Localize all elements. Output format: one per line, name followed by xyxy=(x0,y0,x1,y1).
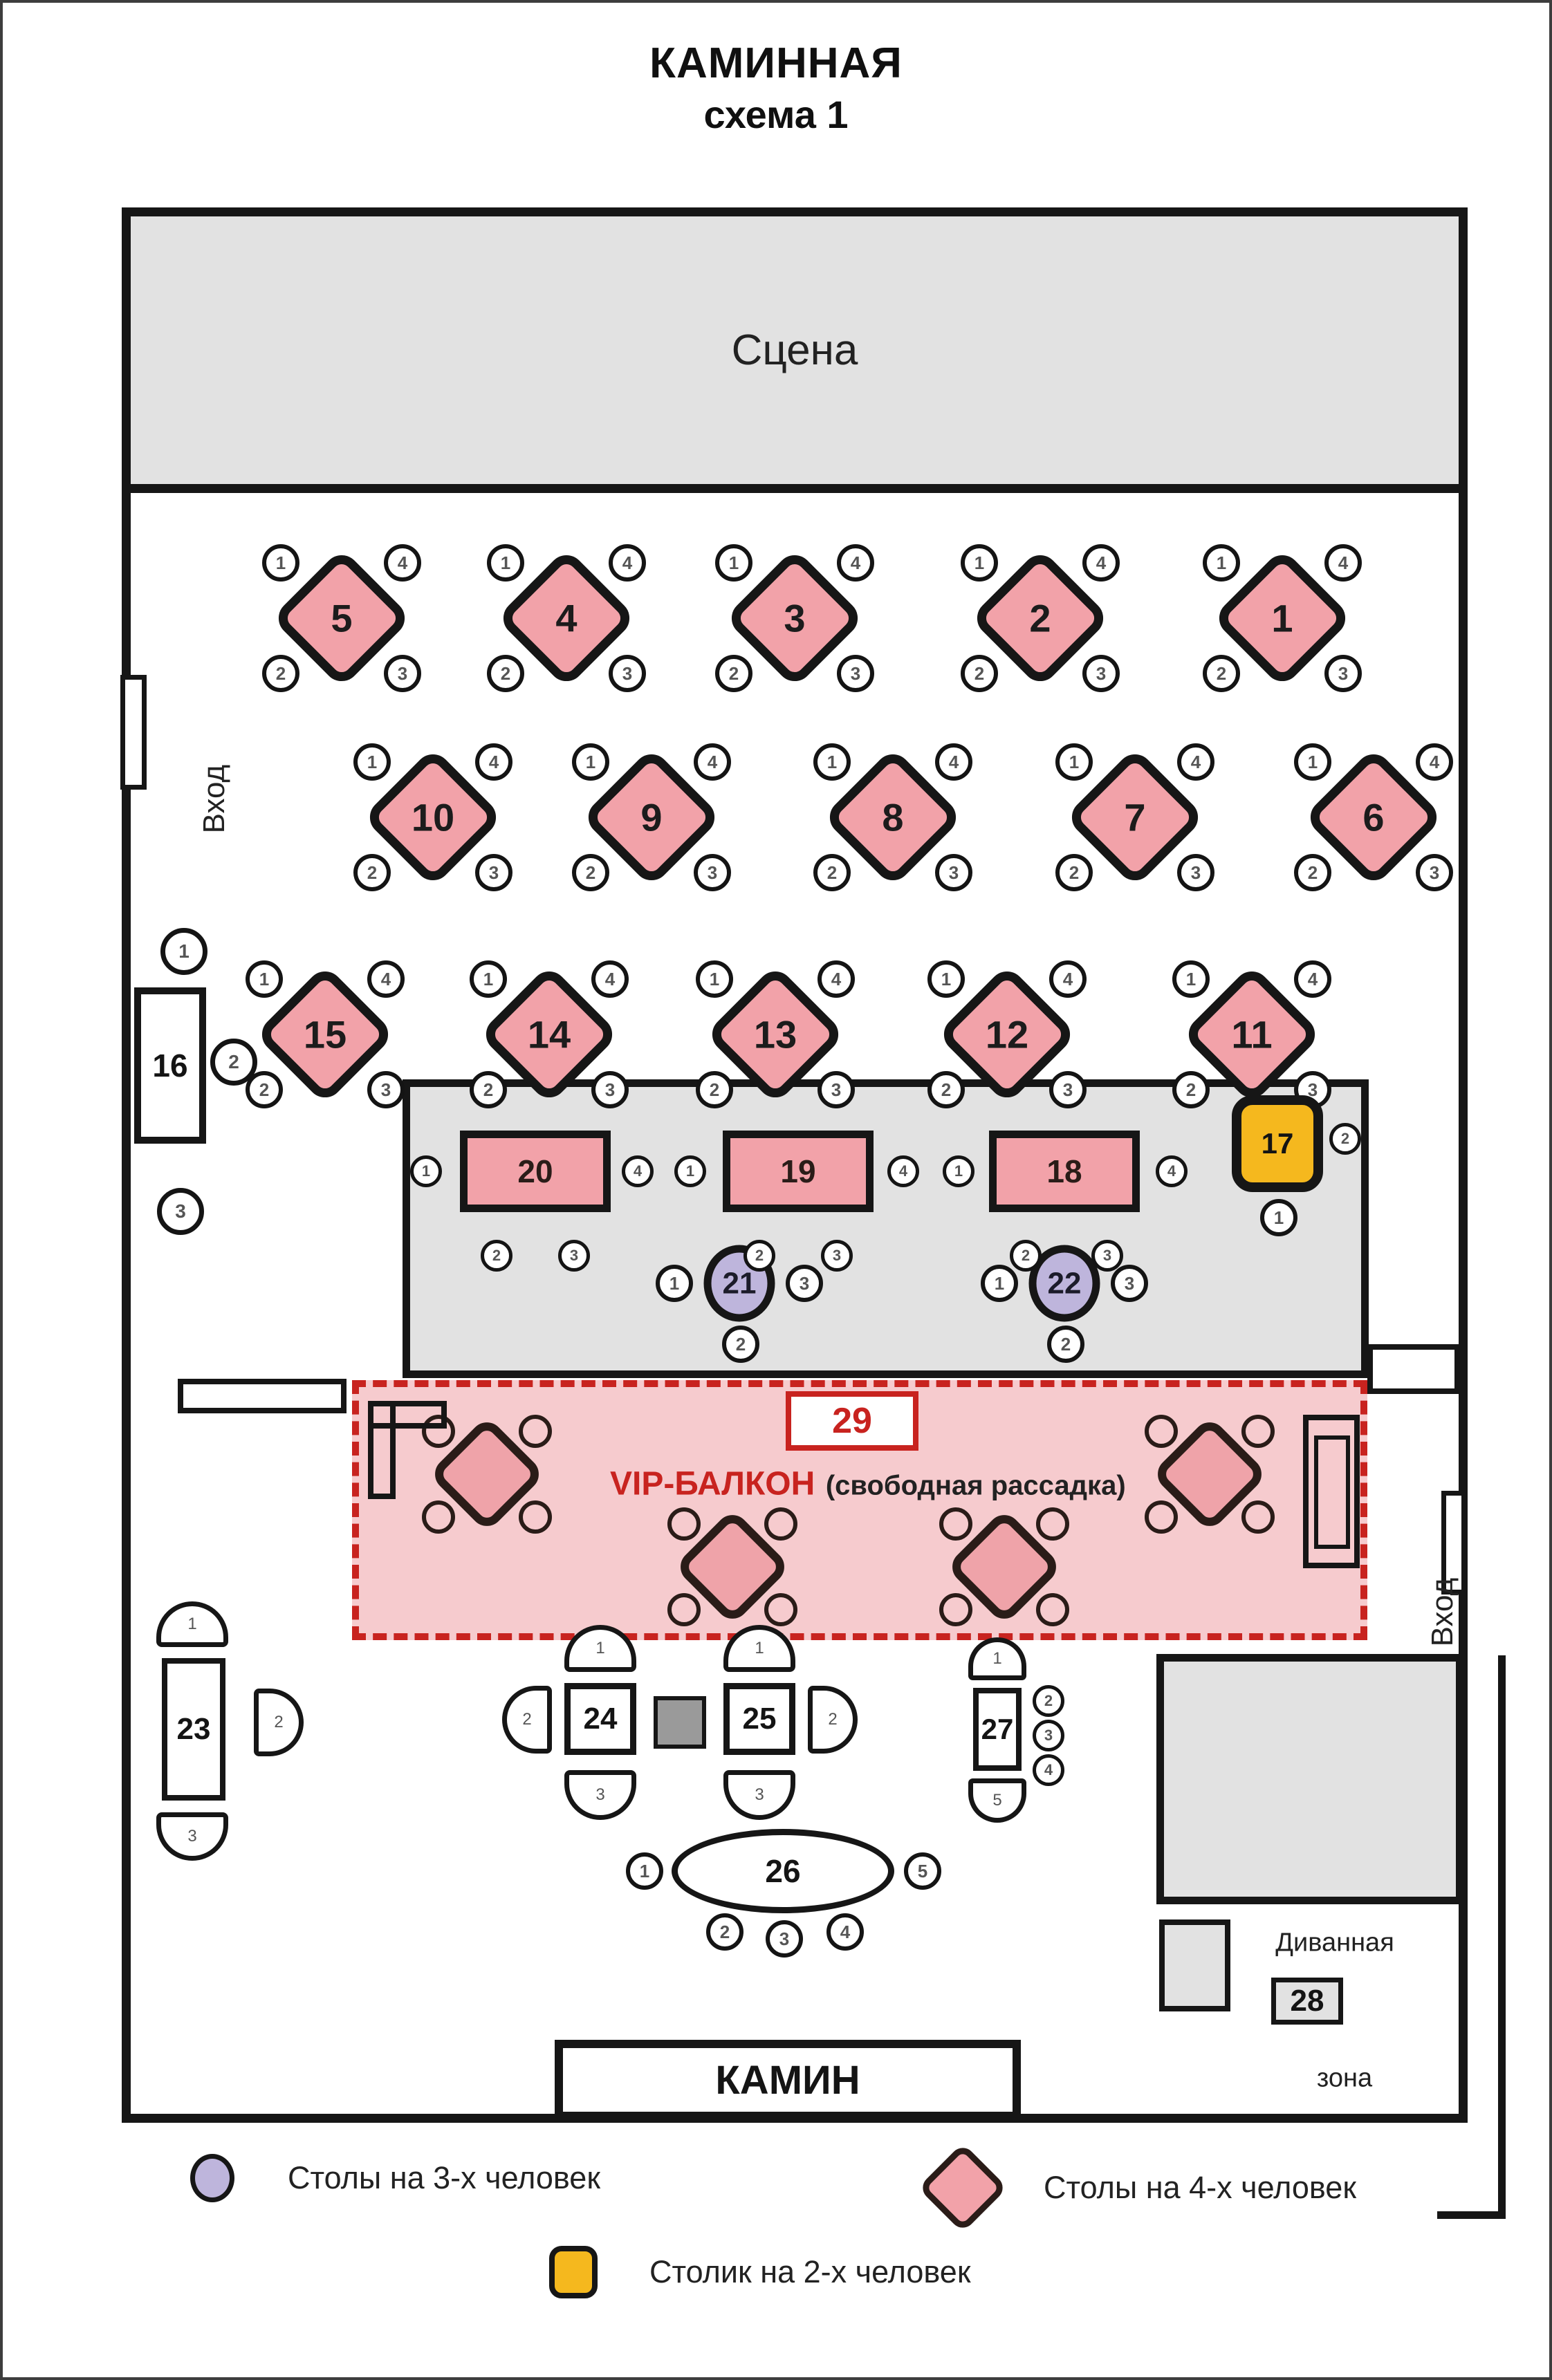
outer-wall-vertical xyxy=(1498,1655,1506,2215)
table-18-seat-4[interactable]: 4 xyxy=(1156,1155,1188,1187)
seat-2[interactable]: 2 xyxy=(262,655,299,692)
seat-1[interactable]: 1 xyxy=(353,743,391,781)
table-20-seat-4[interactable]: 4 xyxy=(622,1155,654,1187)
table-19[interactable]: 19 xyxy=(723,1131,874,1212)
table-22-seat-2[interactable]: 2 xyxy=(1047,1326,1084,1363)
table-number: 15 xyxy=(304,1012,347,1057)
table-25[interactable]: 25 xyxy=(723,1683,795,1755)
table-26-seat-4[interactable]: 4 xyxy=(826,1913,864,1951)
seat-3[interactable]: 3 xyxy=(609,655,646,692)
seat-1[interactable]: 1 xyxy=(262,544,299,582)
seat-2[interactable]: 2 xyxy=(715,655,752,692)
vip-balcony-label: VIP-БАЛКОН (свободная рассадка) xyxy=(610,1465,1126,1503)
table-28[interactable]: 28 xyxy=(1271,1978,1343,2025)
table-16-seat-3[interactable]: 3 xyxy=(157,1188,204,1235)
table-19-seat-2[interactable]: 2 xyxy=(743,1240,775,1272)
table-23[interactable]: 23 xyxy=(162,1658,225,1801)
service-block xyxy=(1156,1654,1463,1904)
seat-1[interactable]: 1 xyxy=(813,743,851,781)
table-22-seat-3[interactable]: 3 xyxy=(1111,1265,1148,1302)
seat-2[interactable]: 2 xyxy=(927,1071,965,1108)
table-16-seat-1[interactable]: 1 xyxy=(160,928,207,975)
door-left[interactable] xyxy=(120,675,147,790)
seat-4[interactable]: 4 xyxy=(817,960,855,998)
table-22-seat-1[interactable]: 1 xyxy=(981,1265,1018,1302)
table-20[interactable]: 20 xyxy=(460,1131,611,1212)
seat-4[interactable]: 4 xyxy=(1324,544,1362,582)
seat-3[interactable]: 3 xyxy=(1177,854,1214,891)
hall-name: КАМИННАЯ xyxy=(3,39,1549,88)
seat-1[interactable]: 1 xyxy=(1172,960,1210,998)
seat-2[interactable]: 2 xyxy=(572,854,609,891)
seat-3[interactable]: 3 xyxy=(475,854,512,891)
table-number: 14 xyxy=(528,1012,571,1057)
seat-4[interactable]: 4 xyxy=(591,960,629,998)
seat-4[interactable]: 4 xyxy=(1294,960,1331,998)
seat-1[interactable]: 1 xyxy=(1055,743,1093,781)
page-title: КАМИННАЯ схема 1 xyxy=(3,39,1549,137)
vip-seat[interactable] xyxy=(667,1593,701,1626)
seat-4[interactable]: 4 xyxy=(1082,544,1120,582)
vip-seat[interactable] xyxy=(422,1500,455,1534)
table-29[interactable]: 29 xyxy=(786,1391,918,1451)
table-18[interactable]: 18 xyxy=(989,1131,1140,1212)
legend-two-seat-icon xyxy=(549,2246,598,2298)
seat-3[interactable]: 3 xyxy=(1082,655,1120,692)
table-26-seat-5[interactable]: 5 xyxy=(904,1852,941,1890)
vip-right-bench-inner xyxy=(1314,1435,1350,1549)
vip-seat[interactable] xyxy=(764,1507,797,1541)
table-21-seat-3[interactable]: 3 xyxy=(786,1265,823,1302)
seat-4[interactable]: 4 xyxy=(1416,743,1453,781)
table-24[interactable]: 24 xyxy=(564,1683,636,1755)
seat-1[interactable]: 1 xyxy=(927,960,965,998)
table-20-seat-3[interactable]: 3 xyxy=(558,1240,590,1272)
table-number: 6 xyxy=(1362,795,1384,840)
vip-note xyxy=(818,1471,826,1501)
vip-note-text: (свободная рассадка) xyxy=(826,1471,1126,1501)
vip-seat[interactable] xyxy=(1145,1415,1178,1448)
seat-3[interactable]: 3 xyxy=(935,854,972,891)
vip-name: VIP-БАЛКОН xyxy=(610,1466,815,1503)
seat-4[interactable]: 4 xyxy=(384,544,421,582)
seat-2[interactable]: 2 xyxy=(1203,655,1240,692)
seat-3[interactable]: 3 xyxy=(591,1071,629,1108)
seat-4[interactable]: 4 xyxy=(694,743,731,781)
table-26-seat-2[interactable]: 2 xyxy=(706,1913,743,1951)
table-21-seat-1[interactable]: 1 xyxy=(656,1265,693,1302)
entrance-left-label: Вход xyxy=(197,765,232,834)
vip-seat[interactable] xyxy=(1036,1593,1069,1626)
seat-1[interactable]: 1 xyxy=(961,544,998,582)
seat-4[interactable]: 4 xyxy=(609,544,646,582)
seat-2[interactable]: 2 xyxy=(813,854,851,891)
seat-1[interactable]: 1 xyxy=(1294,743,1331,781)
seat-2[interactable]: 2 xyxy=(1172,1071,1210,1108)
table-27[interactable]: 27 xyxy=(973,1688,1022,1771)
seat-1[interactable]: 1 xyxy=(696,960,733,998)
table-number: 5 xyxy=(331,596,352,641)
seat-4[interactable]: 4 xyxy=(935,743,972,781)
vip-seat[interactable] xyxy=(1241,1500,1275,1534)
small-gray-block xyxy=(1159,1919,1230,2011)
vip-corner-bench-side xyxy=(368,1401,396,1499)
table-17[interactable]: 17 xyxy=(1232,1095,1323,1192)
vip-seat[interactable] xyxy=(1036,1507,1069,1541)
wall-stub-right xyxy=(1367,1344,1460,1394)
seat-2[interactable]: 2 xyxy=(1055,854,1093,891)
table-number: 12 xyxy=(986,1012,1028,1057)
vip-seat[interactable] xyxy=(939,1507,972,1541)
seat-4[interactable]: 4 xyxy=(1049,960,1087,998)
table-20-seat-2[interactable]: 2 xyxy=(481,1240,512,1272)
sofa-zone-word-top: Диванная xyxy=(1275,1928,1394,1958)
seat-1[interactable]: 1 xyxy=(246,960,283,998)
table-number: 10 xyxy=(412,795,454,840)
table-19-seat-1[interactable]: 1 xyxy=(674,1155,706,1187)
seat-3[interactable]: 3 xyxy=(367,1071,405,1108)
stage: Сцена xyxy=(122,207,1468,493)
table-17-seat-1[interactable]: 1 xyxy=(1260,1199,1297,1236)
seat-2[interactable]: 2 xyxy=(961,655,998,692)
fireplace: КАМИН xyxy=(555,2040,1021,2120)
table-16[interactable]: 16 xyxy=(134,987,206,1144)
seat-3[interactable]: 3 xyxy=(1049,1071,1087,1108)
vip-seat[interactable] xyxy=(764,1593,797,1626)
table-number: 9 xyxy=(640,795,662,840)
legend-four-seat-label: Столы на 4-х человек xyxy=(1044,2170,1356,2206)
legend-four-seat-icon xyxy=(918,2143,1008,2233)
table-21-seat-2[interactable]: 2 xyxy=(722,1326,759,1363)
table-16-seat-2[interactable]: 2 xyxy=(210,1039,257,1086)
legend-three-seat-label: Столы на 3-х человек xyxy=(288,2160,600,2196)
seat-1[interactable]: 1 xyxy=(487,544,524,582)
table-27-seat-3[interactable]: 3 xyxy=(1033,1720,1064,1751)
table-number: 13 xyxy=(754,1012,797,1057)
table-17-seat-2[interactable]: 2 xyxy=(1329,1123,1361,1155)
outer-wall-horizontal xyxy=(1437,2211,1506,2219)
seat-3[interactable]: 3 xyxy=(1416,854,1453,891)
vip-seat[interactable] xyxy=(939,1593,972,1626)
vip-seat[interactable] xyxy=(1241,1415,1275,1448)
seat-3[interactable]: 3 xyxy=(817,1071,855,1108)
seat-1[interactable]: 1 xyxy=(572,743,609,781)
table-number: 4 xyxy=(555,596,577,641)
seat-2[interactable]: 2 xyxy=(353,854,391,891)
seat-2[interactable]: 2 xyxy=(487,655,524,692)
wall-stub-left xyxy=(178,1379,347,1413)
seat-1[interactable]: 1 xyxy=(1203,544,1240,582)
entrance-right-label: Вход xyxy=(1425,1578,1460,1647)
service-table xyxy=(654,1696,706,1749)
seat-3[interactable]: 3 xyxy=(1324,655,1362,692)
table-20-seat-1[interactable]: 1 xyxy=(410,1155,442,1187)
table-26[interactable]: 26 xyxy=(672,1829,894,1913)
table-number: 2 xyxy=(1029,596,1051,641)
seat-1[interactable]: 1 xyxy=(715,544,752,582)
seat-3[interactable]: 3 xyxy=(837,655,874,692)
table-18-seat-3[interactable]: 3 xyxy=(1091,1240,1123,1272)
table-18-seat-2[interactable]: 2 xyxy=(1010,1240,1042,1272)
seat-3[interactable]: 3 xyxy=(694,854,731,891)
table-number: 3 xyxy=(784,596,805,641)
table-26-seat-3[interactable]: 3 xyxy=(766,1920,803,1958)
table-number: 8 xyxy=(882,795,903,840)
floor-plan-canvas: КАМИННАЯ схема 1 Сцена Вход 5 1 4 2 3 4 … xyxy=(0,0,1552,2380)
seat-2[interactable]: 2 xyxy=(1294,854,1331,891)
seat-4[interactable]: 4 xyxy=(1177,743,1214,781)
seat-4[interactable]: 4 xyxy=(367,960,405,998)
seat-2[interactable]: 2 xyxy=(696,1071,733,1108)
table-19-seat-3[interactable]: 3 xyxy=(821,1240,853,1272)
table-number: 1 xyxy=(1271,596,1293,641)
gray-floor-zone xyxy=(403,1079,1369,1378)
table-18-seat-1[interactable]: 1 xyxy=(943,1155,974,1187)
table-19-seat-4[interactable]: 4 xyxy=(887,1155,919,1187)
table-number: 11 xyxy=(1231,1012,1272,1057)
table-26-seat-1[interactable]: 1 xyxy=(626,1852,663,1890)
table-27-seat-4[interactable]: 4 xyxy=(1033,1754,1064,1786)
seat-1[interactable]: 1 xyxy=(470,960,507,998)
sofa-zone-word-bottom: зона xyxy=(1317,2064,1372,2094)
seat-2[interactable]: 2 xyxy=(470,1071,507,1108)
vip-seat[interactable] xyxy=(519,1500,552,1534)
vip-seat[interactable] xyxy=(667,1507,701,1541)
vip-seat[interactable] xyxy=(519,1415,552,1448)
legend-three-seat-icon xyxy=(190,2154,234,2202)
vip-seat[interactable] xyxy=(1145,1500,1178,1534)
schema-number: схема 1 xyxy=(3,92,1549,137)
seat-3[interactable]: 3 xyxy=(384,655,421,692)
table-number: 7 xyxy=(1124,795,1145,840)
seat-4[interactable]: 4 xyxy=(475,743,512,781)
seat-4[interactable]: 4 xyxy=(837,544,874,582)
legend-two-seat-label: Столик на 2-х человек xyxy=(649,2254,971,2290)
table-27-seat-2[interactable]: 2 xyxy=(1033,1685,1064,1717)
